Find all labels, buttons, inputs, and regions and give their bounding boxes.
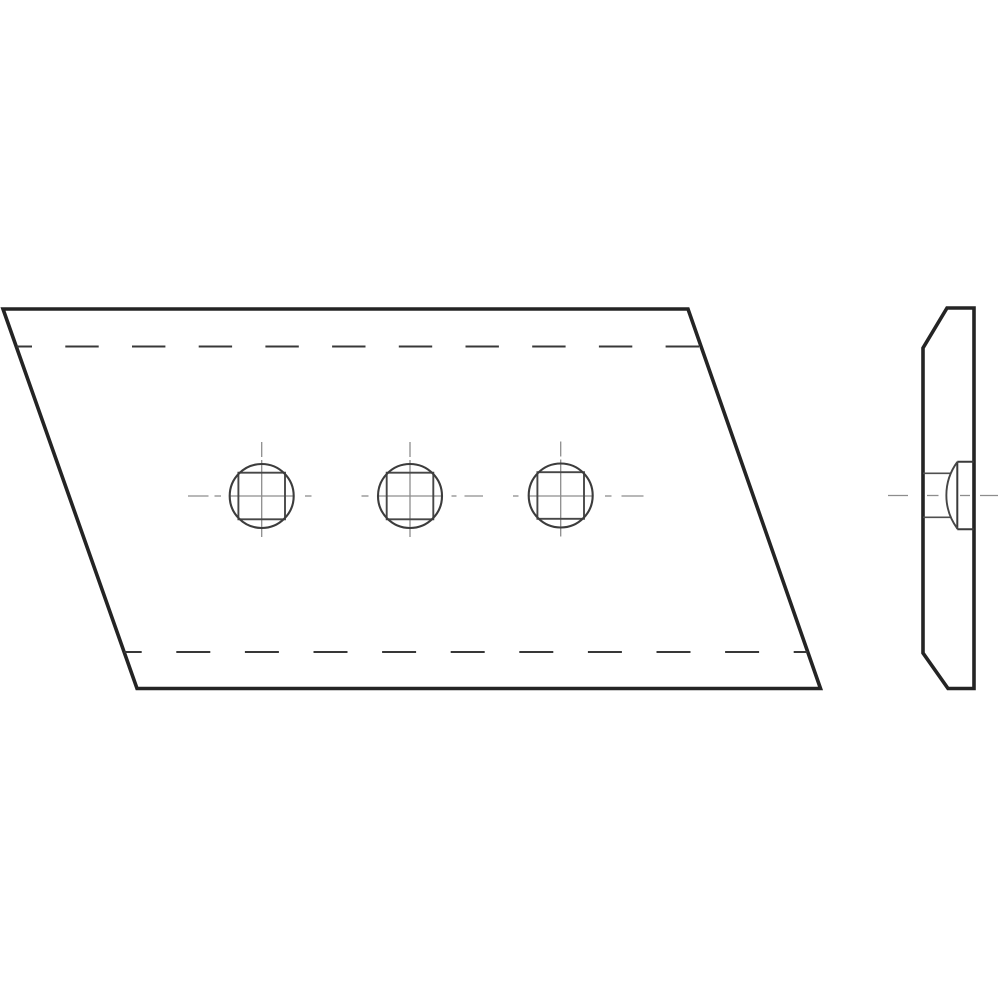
side-view: [888, 308, 998, 689]
drawing-stage: [0, 0, 1000, 1000]
front-view: [3, 309, 821, 689]
bolt-hole-3: [529, 442, 593, 537]
bolt-hole-1: [230, 442, 294, 537]
countersink-dome-arc: [946, 462, 957, 529]
bolt-hole-2: [378, 442, 442, 537]
technical-drawing: [3, 308, 998, 689]
profile-outline: [923, 308, 974, 689]
plate-outline: [3, 309, 821, 689]
